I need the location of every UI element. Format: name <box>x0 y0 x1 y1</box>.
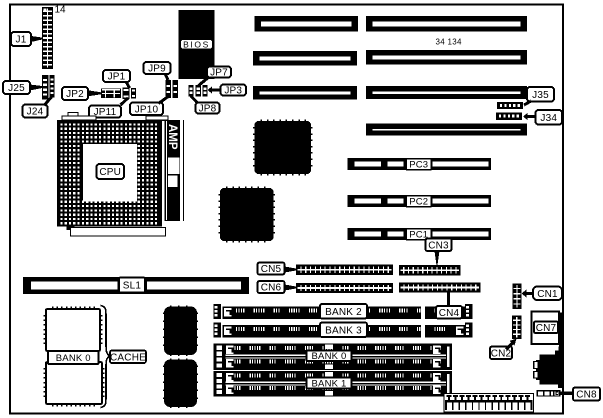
svg-text:CN6: CN6 <box>261 283 282 294</box>
svg-text:BANK 2: BANK 2 <box>325 307 362 318</box>
svg-text:BANK 1: BANK 1 <box>312 378 347 389</box>
svg-text:JP11: JP11 <box>94 107 117 118</box>
svg-text:CN3: CN3 <box>428 240 449 251</box>
svg-text:SL1: SL1 <box>123 281 142 292</box>
svg-text:PC3: PC3 <box>409 160 428 171</box>
svg-text:AMP: AMP <box>166 124 178 150</box>
svg-text:CN2: CN2 <box>491 348 512 359</box>
svg-text:JP8: JP8 <box>199 104 217 115</box>
svg-text:JP10: JP10 <box>135 104 159 115</box>
svg-text:CN5: CN5 <box>261 264 282 275</box>
svg-text:BANK 3: BANK 3 <box>325 325 362 336</box>
svg-text:J25: J25 <box>8 83 25 94</box>
svg-text:CACHE: CACHE <box>110 352 146 363</box>
svg-text:JP7: JP7 <box>210 68 228 79</box>
svg-text:CN8: CN8 <box>576 390 597 401</box>
svg-text:BIOS: BIOS <box>183 39 210 49</box>
svg-text:J34: J34 <box>540 113 557 124</box>
svg-text:J1: J1 <box>16 35 27 46</box>
svg-text:14: 14 <box>55 5 67 16</box>
svg-text:JP1: JP1 <box>108 72 126 83</box>
svg-text:J35: J35 <box>532 90 549 101</box>
svg-text:PC2: PC2 <box>409 197 428 208</box>
svg-text:J24: J24 <box>27 107 44 118</box>
svg-text:JP3: JP3 <box>224 86 242 97</box>
svg-text:BANK 0: BANK 0 <box>56 353 91 364</box>
svg-text:CN1: CN1 <box>537 289 558 300</box>
svg-text:BANK 0: BANK 0 <box>312 351 347 362</box>
svg-text:CN7: CN7 <box>536 323 557 334</box>
svg-text:CPU: CPU <box>99 167 121 178</box>
svg-text:34 134: 34 134 <box>436 37 463 46</box>
svg-text:JP9: JP9 <box>148 64 166 75</box>
svg-text:JP2: JP2 <box>66 89 84 100</box>
svg-text:CN4: CN4 <box>439 308 460 319</box>
